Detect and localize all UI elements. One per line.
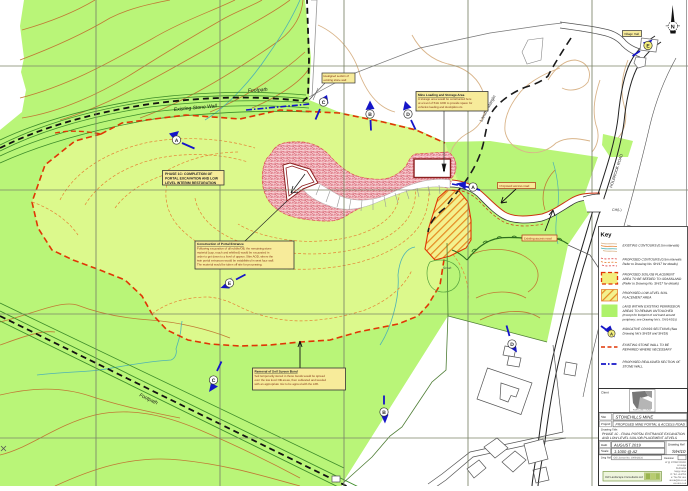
svg-text:INDICATIVE CROSS SECTIONS (See: INDICATIVE CROSS SECTIONS (See [623, 327, 678, 331]
svg-text:Scale: Scale [601, 449, 609, 453]
svg-text:DURHAM: DURHAM [676, 467, 686, 470]
svg-text:The material would be taken of: The material would be taken off site for… [197, 262, 263, 266]
svg-text:Removal of Soil Screen Bund: Removal of Soil Screen Bund [255, 370, 298, 374]
svg-text:EXISTING CONTOURS (0.5m interv: EXISTING CONTOURS (0.5m intervals) [623, 244, 680, 248]
svg-text:D: D [406, 112, 410, 118]
svg-text:PROPOSED REALIGNED SECTION OF: PROPOSED REALIGNED SECTION OF [623, 360, 682, 364]
svg-text:(Refer to Drawing No. SH/17 fo: (Refer to Drawing No. SH/17 for details) [623, 282, 679, 286]
svg-text:B: B [368, 112, 372, 118]
svg-text:AND LOW LEVEL SOIL/OB PLACEMEN: AND LOW LEVEL SOIL/OB PLACEMENT LEVELS [601, 436, 678, 440]
svg-text:existing stone wall: existing stone wall [324, 78, 347, 82]
svg-text:Drawing No's SH/18 and SH/19): Drawing No's SH/18 and SH/19) [623, 332, 669, 336]
svg-text:PROPOSED CONTOURS (0.5m interv: PROPOSED CONTOURS (0.5m intervals [623, 258, 682, 262]
svg-text:Footpath: Footpath [248, 87, 268, 94]
svg-text:LEVEL INTERIM RESTORATION: LEVEL INTERIM RESTORATION [165, 181, 217, 185]
svg-text:Revision: Revision [664, 457, 675, 460]
svg-text:PROPOSED SOIL/OB PLACEMENT: PROPOSED SOIL/OB PLACEMENT [623, 273, 676, 277]
svg-text:Refer to Drawing No. SH/17 for: Refer to Drawing No. SH/17 for details) [623, 262, 678, 266]
svg-text:D: Tel: +44/794: D: Tel: +44/794 [671, 473, 687, 476]
svg-text:AREA TO BE SEEDED TO GRASSLAND: AREA TO BE SEEDED TO GRASSLAND [622, 277, 682, 281]
svg-text:1:1000 @ A2: 1:1000 @ A2 [614, 449, 638, 454]
svg-text:xxx.abc.o.uk: xxx.abc.o.uk [673, 482, 687, 485]
svg-text:C: C [212, 378, 216, 384]
svg-text:PLACEMENT AREA: PLACEMENT AREA [623, 296, 652, 300]
svg-text:in bridge: in bridge [677, 464, 687, 467]
svg-text:STONE WALL: STONE WALL [623, 365, 644, 369]
svg-text:W @ STONE ROAD: W @ STONE ROAD [665, 461, 686, 464]
svg-text:PORTLAND STONE: PORTLAND STONE [633, 409, 652, 412]
svg-text:S/H/10: S/H/10 [672, 449, 686, 454]
svg-text:Village Hall: Village Hall [624, 32, 639, 36]
svg-text:Project: Project [601, 422, 611, 426]
svg-text:PHASE 1C: COMPLETION OF: PHASE 1C: COMPLETION OF [165, 172, 212, 176]
svg-text:with an appropriate mix to be: with an appropriate mix to be agreed wit… [255, 382, 320, 386]
svg-text:EXISTING STONE WALL TO BE: EXISTING STONE WALL TO BE [623, 343, 670, 347]
svg-text:abcde@bt.co.uk: abcde@bt.co.uk [669, 479, 686, 482]
svg-text:Site: Site [601, 415, 607, 419]
svg-text:PROPOSED MINE PORTAL & ACCESS: PROPOSED MINE PORTAL & ACCESS ROAD [616, 422, 686, 426]
svg-text:Drawing Title:: Drawing Title: [601, 428, 618, 432]
svg-text:REPAIRED WHERE NECESSARY: REPAIRED WHERE NECESSARY [623, 348, 673, 352]
svg-text:vehicles loading and stockpile: vehicles loading and stockpiles etc. [418, 105, 463, 109]
svg-text:OS Licence No. 100043231: OS Licence No. 100043231 [614, 457, 644, 460]
svg-text:Date: Date [601, 443, 608, 447]
svg-text:Existing access road: Existing access road [524, 236, 552, 240]
svg-text:AUGUST 2019: AUGUST 2019 [613, 442, 641, 447]
svg-text:Proposed access road: Proposed access road [500, 184, 530, 188]
svg-text:B: B [382, 410, 386, 416]
svg-text:periphery; see Drawing No's. S: periphery; see Drawing No's. SH/14/015) [622, 317, 677, 321]
svg-text:HW Landscape Consultants Ltd: HW Landscape Consultants Ltd [605, 476, 643, 479]
svg-text:e: The Tel: abc: e: The Tel: abc [671, 476, 687, 479]
svg-text:D: D [510, 342, 514, 348]
svg-text:happy days: happy days [674, 470, 687, 473]
svg-text:PROPOSED LOW LEVEL SOIL: PROPOSED LOW LEVEL SOIL [623, 291, 668, 295]
svg-text:CH(L): CH(L) [612, 208, 622, 212]
svg-text:STONEHILLS MINE: STONEHILLS MINE [616, 415, 654, 420]
svg-text:A: A [175, 138, 179, 144]
svg-text:Drawing Ref: Drawing Ref [668, 443, 685, 447]
svg-text:Client: Client [601, 391, 609, 395]
svg-text:Dwg Ref: Dwg Ref [601, 457, 611, 460]
svg-text:N: N [671, 24, 675, 30]
svg-text:PORTAL EXCAVATION AND LOW: PORTAL EXCAVATION AND LOW [165, 177, 219, 181]
svg-text:A: A [610, 331, 613, 336]
svg-text:Key: Key [601, 232, 613, 239]
svg-text:A: A [471, 185, 475, 191]
svg-text:C: C [322, 100, 326, 106]
svg-text:Scrub: Scrub [443, 266, 452, 270]
